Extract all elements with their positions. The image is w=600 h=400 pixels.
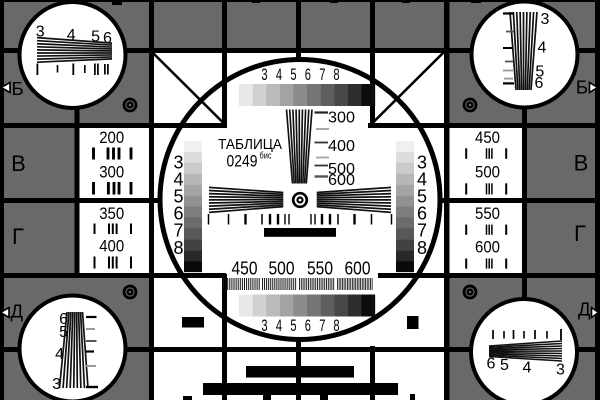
svg-text:400: 400	[328, 138, 355, 155]
svg-text:600: 600	[475, 238, 500, 257]
svg-text:3: 3	[261, 66, 267, 84]
svg-text:400: 400	[99, 237, 124, 256]
svg-text:6: 6	[305, 66, 311, 84]
svg-text:3: 3	[261, 317, 267, 335]
svg-text:7: 7	[319, 66, 325, 84]
svg-text:350: 350	[99, 204, 124, 223]
svg-text:Г: Г	[574, 221, 586, 246]
svg-text:450: 450	[475, 128, 500, 147]
svg-text:4: 4	[523, 360, 532, 377]
svg-text:Д: Д	[578, 299, 591, 320]
svg-text:8: 8	[173, 238, 183, 258]
svg-text:550: 550	[307, 259, 333, 279]
svg-text:200: 200	[99, 128, 124, 147]
svg-text:7: 7	[319, 317, 325, 335]
svg-text:600: 600	[328, 172, 355, 189]
svg-text:0249: 0249	[227, 152, 258, 170]
svg-text:5: 5	[290, 66, 296, 84]
svg-text:ТАБЛИЦА: ТАБЛИЦА	[218, 136, 282, 153]
svg-text:500: 500	[475, 163, 500, 182]
svg-text:6: 6	[535, 75, 544, 92]
svg-text:500: 500	[269, 259, 295, 279]
svg-text:600: 600	[345, 259, 371, 279]
svg-text:Б: Б	[12, 78, 24, 99]
svg-text:4: 4	[67, 27, 76, 44]
svg-text:Б: Б	[576, 77, 588, 98]
svg-text:Г: Г	[12, 224, 24, 249]
svg-text:300: 300	[328, 110, 355, 127]
svg-text:6: 6	[487, 356, 496, 373]
svg-text:550: 550	[475, 204, 500, 223]
svg-text:300: 300	[99, 162, 124, 181]
svg-text:5: 5	[290, 317, 296, 335]
svg-text:В: В	[11, 151, 26, 176]
svg-text:4: 4	[276, 66, 282, 84]
svg-text:450: 450	[232, 259, 258, 279]
svg-text:3: 3	[541, 11, 550, 28]
svg-text:4: 4	[538, 40, 547, 57]
svg-text:В: В	[574, 151, 589, 176]
svg-text:бис: бис	[260, 150, 272, 160]
svg-text:6: 6	[305, 317, 311, 335]
svg-text:8: 8	[333, 317, 339, 335]
svg-text:3: 3	[556, 362, 565, 379]
svg-text:8: 8	[333, 66, 339, 84]
svg-text:Д: Д	[11, 301, 24, 322]
svg-text:5: 5	[500, 357, 509, 374]
svg-text:8: 8	[417, 238, 427, 258]
svg-text:4: 4	[276, 317, 282, 335]
